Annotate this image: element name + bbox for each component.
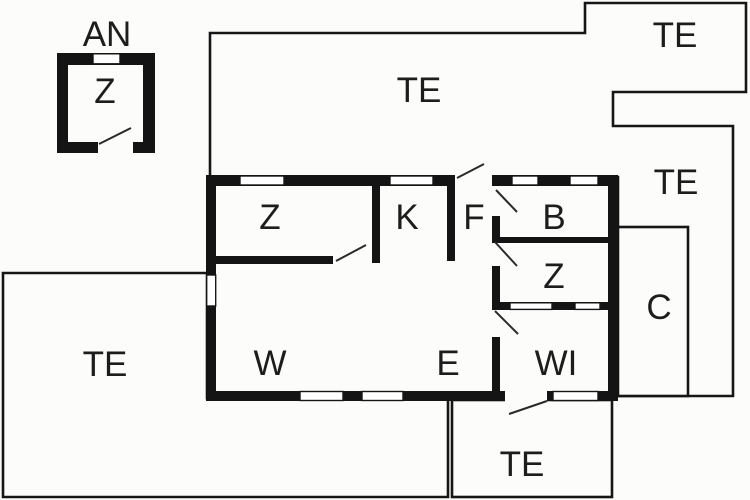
- label-room-f: F: [463, 198, 484, 237]
- wall-f-b-seg2: [492, 266, 500, 302]
- floor-plan-drawing: AN Z TE TE TE TE TE Z K F B Z W E WI C: [0, 0, 750, 500]
- label-carport: C: [646, 288, 671, 327]
- label-room-k: K: [395, 198, 418, 237]
- label-terrace-left: TE: [83, 345, 128, 384]
- label-terrace-top: TE: [397, 71, 442, 110]
- wall-e-wi-seg: [492, 337, 500, 391]
- label-annex-room: Z: [94, 72, 115, 111]
- window-bottom-1: [300, 392, 343, 401]
- window-zwi-2: [575, 303, 600, 310]
- label-terrace-top-right: TE: [653, 16, 698, 55]
- wall-b-z: [492, 237, 608, 243]
- window-zwi-1: [510, 303, 552, 310]
- label-room-b: B: [542, 198, 565, 237]
- label-room-z-right: Z: [543, 257, 564, 296]
- annex-window: [93, 54, 120, 64]
- window-top-4: [570, 176, 598, 185]
- label-terrace-right: TE: [654, 163, 699, 202]
- wall-f-b-seg1: [492, 216, 500, 237]
- wall-z-k: [372, 186, 380, 263]
- wall-k-f: [447, 186, 455, 261]
- window-top-1: [240, 176, 284, 185]
- label-room-w: W: [253, 344, 286, 383]
- back-door-opening: [505, 390, 547, 404]
- label-annex-title: AN: [83, 15, 132, 54]
- label-room-e: E: [436, 344, 459, 383]
- label-room-z-top-left: Z: [259, 198, 280, 237]
- window-bottom-3: [553, 392, 598, 401]
- window-top-3: [512, 176, 538, 185]
- floor-plan-page: AN Z TE TE TE TE TE Z K F B Z W E WI C: [0, 0, 750, 500]
- window-top-2: [390, 176, 433, 185]
- label-terrace-bottom: TE: [500, 445, 545, 484]
- label-room-wi: WI: [535, 344, 578, 383]
- window-left-1: [207, 275, 216, 306]
- wall-z-w: [216, 256, 333, 264]
- window-bottom-2: [362, 392, 403, 401]
